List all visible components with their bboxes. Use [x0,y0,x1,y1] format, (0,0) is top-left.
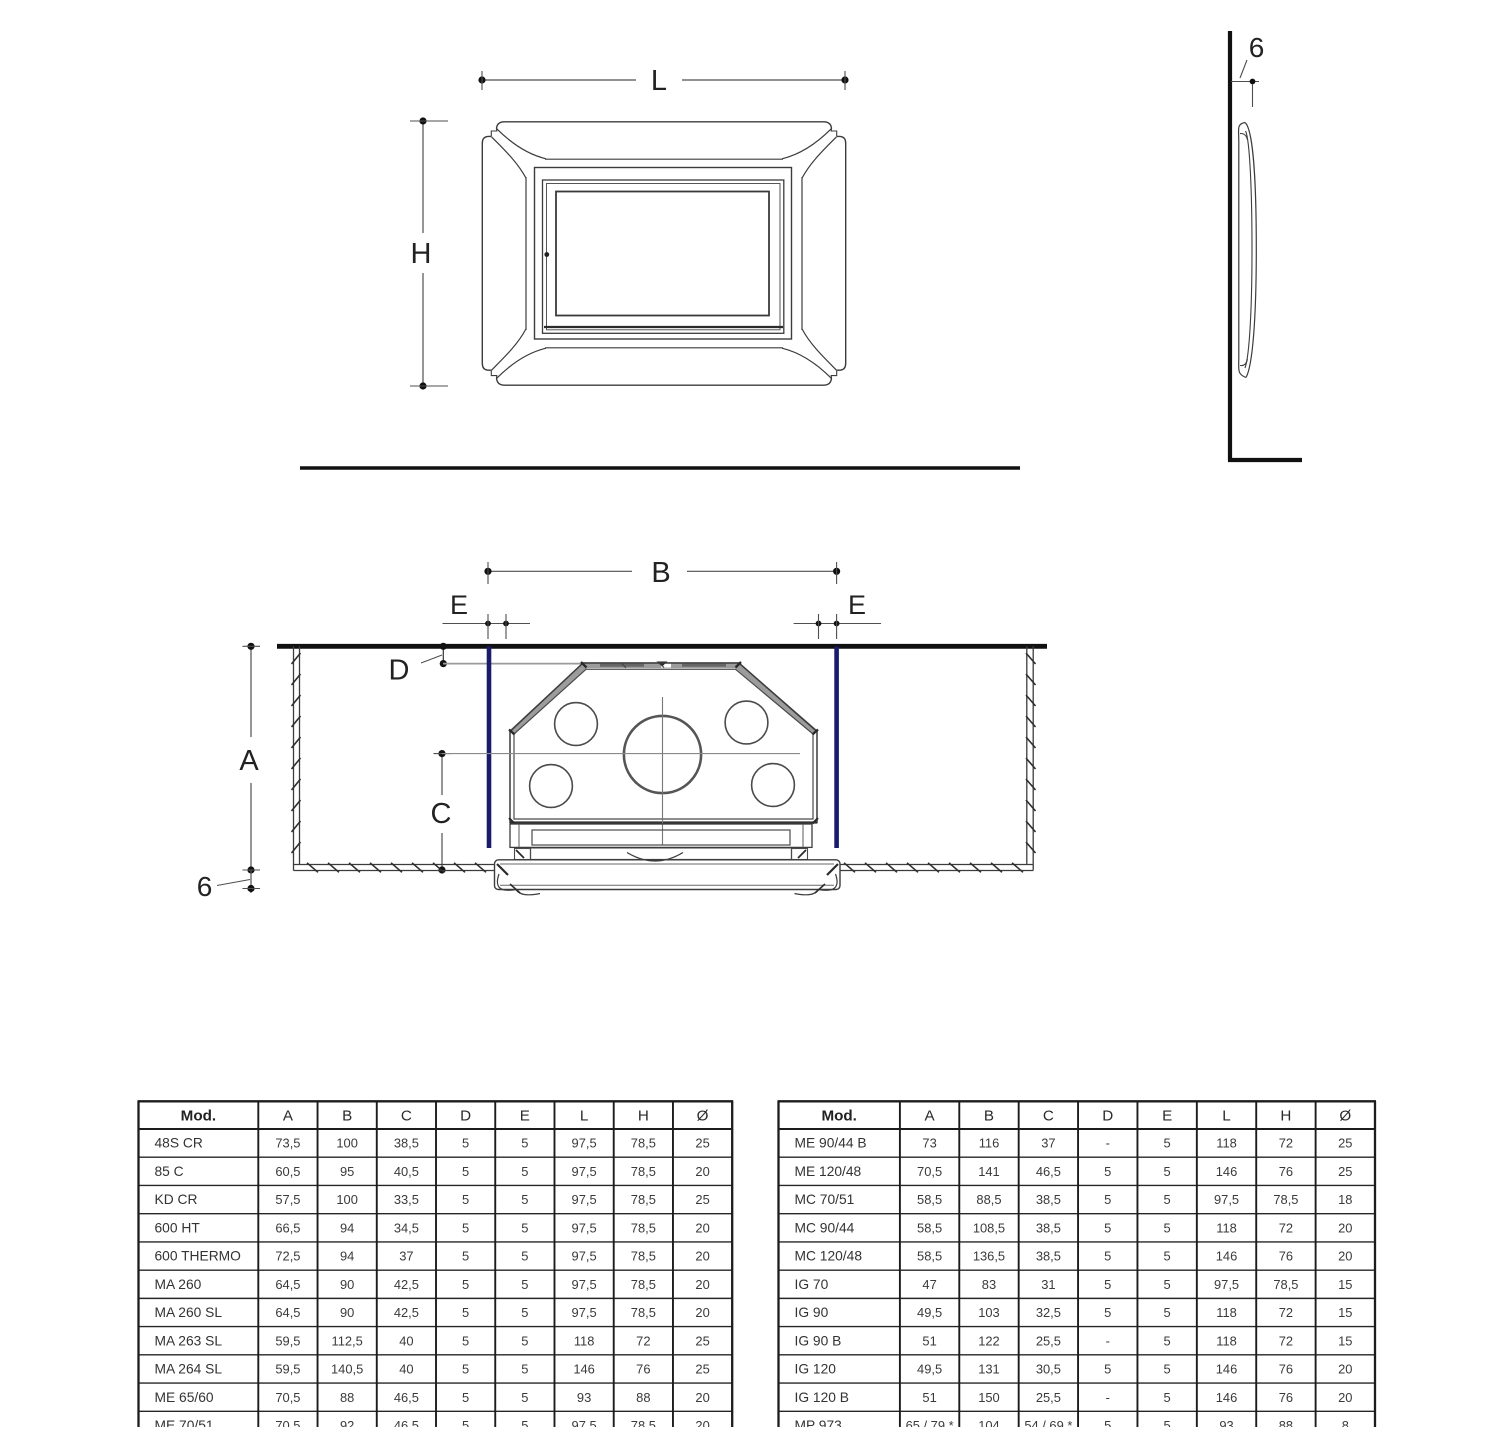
svg-text:66,5: 66,5 [275,1220,300,1235]
svg-text:MA 260: MA 260 [155,1277,202,1292]
svg-text:600 THERMO: 600 THERMO [155,1249,242,1264]
svg-text:20: 20 [695,1277,709,1292]
svg-text:20: 20 [695,1418,709,1427]
svg-text:25: 25 [695,1362,709,1377]
svg-text:5: 5 [1104,1164,1111,1179]
svg-text:136,5: 136,5 [973,1249,1005,1264]
svg-text:78,5: 78,5 [631,1249,656,1264]
svg-text:8: 8 [1342,1418,1349,1427]
svg-text:A: A [283,1107,294,1124]
svg-text:5: 5 [462,1192,469,1207]
svg-text:B: B [342,1107,352,1124]
svg-text:6: 6 [1249,32,1265,63]
svg-text:25: 25 [695,1333,709,1348]
svg-text:5: 5 [1164,1305,1171,1320]
svg-text:72,5: 72,5 [275,1249,300,1264]
svg-text:78,5: 78,5 [631,1164,656,1179]
svg-text:70,5: 70,5 [275,1390,300,1405]
svg-text:5: 5 [521,1192,528,1207]
svg-text:18: 18 [1338,1192,1352,1207]
svg-text:31: 31 [1041,1277,1055,1292]
svg-text:MC 70/51: MC 70/51 [795,1192,855,1207]
svg-text:72: 72 [1279,1333,1293,1348]
svg-text:78,5: 78,5 [631,1136,656,1151]
svg-text:51: 51 [922,1390,936,1405]
svg-text:60,5: 60,5 [275,1164,300,1179]
svg-text:64,5: 64,5 [275,1277,300,1292]
svg-text:MA 263 SL: MA 263 SL [155,1333,223,1348]
svg-text:88,5: 88,5 [976,1192,1001,1207]
svg-text:C: C [1043,1107,1054,1124]
svg-text:78,5: 78,5 [631,1277,656,1292]
svg-text:83: 83 [982,1277,996,1292]
svg-text:5: 5 [1104,1192,1111,1207]
svg-text:D: D [460,1107,471,1124]
svg-text:5: 5 [1164,1249,1171,1264]
svg-text:40,5: 40,5 [394,1164,419,1179]
svg-text:90: 90 [340,1277,354,1292]
svg-text:116: 116 [979,1136,1000,1151]
svg-text:122: 122 [978,1333,1000,1348]
svg-text:6: 6 [197,871,213,902]
svg-text:5: 5 [521,1418,528,1427]
svg-text:25: 25 [695,1192,709,1207]
svg-text:146: 146 [1216,1249,1238,1264]
svg-text:94: 94 [340,1220,354,1235]
svg-text:5: 5 [462,1362,469,1377]
svg-text:93: 93 [1219,1418,1233,1427]
svg-text:MA 260 SL: MA 260 SL [155,1305,223,1320]
svg-text:92: 92 [340,1418,354,1427]
svg-text:97,5: 97,5 [572,1249,597,1264]
svg-text:IG 70: IG 70 [795,1277,829,1292]
svg-text:104: 104 [978,1418,1000,1427]
svg-text:38,5: 38,5 [1036,1249,1061,1264]
svg-text:IG 90 B: IG 90 B [795,1333,842,1348]
svg-text:5: 5 [521,1305,528,1320]
svg-text:47: 47 [922,1277,936,1292]
svg-text:KD CR: KD CR [155,1192,198,1207]
svg-text:70,5: 70,5 [275,1418,300,1427]
svg-text:118: 118 [1216,1305,1237,1320]
svg-text:B: B [984,1107,994,1124]
svg-text:85 C: 85 C [155,1164,184,1179]
svg-text:MC 120/48: MC 120/48 [795,1249,863,1264]
svg-text:20: 20 [1338,1220,1352,1235]
svg-text:57,5: 57,5 [275,1192,300,1207]
svg-text:-: - [1106,1136,1110,1151]
svg-text:72: 72 [1279,1220,1293,1235]
svg-text:78,5: 78,5 [1273,1277,1298,1292]
svg-text:64,5: 64,5 [275,1305,300,1320]
svg-text:25: 25 [695,1136,709,1151]
svg-text:5: 5 [521,1220,528,1235]
svg-text:97,5: 97,5 [572,1305,597,1320]
svg-text:146: 146 [1216,1164,1238,1179]
svg-text:5: 5 [1104,1220,1111,1235]
svg-text:5: 5 [1164,1164,1171,1179]
svg-text:MC 90/44: MC 90/44 [795,1220,855,1235]
svg-text:20: 20 [1338,1362,1352,1377]
svg-text:108,5: 108,5 [973,1220,1005,1235]
svg-text:A: A [925,1107,936,1124]
svg-text:72: 72 [1279,1136,1293,1151]
svg-text:IG 120 B: IG 120 B [795,1390,849,1405]
svg-text:5: 5 [1104,1362,1111,1377]
svg-text:5: 5 [521,1390,528,1405]
svg-text:5: 5 [462,1220,469,1235]
svg-text:58,5: 58,5 [917,1220,942,1235]
svg-text:38,5: 38,5 [1036,1192,1061,1207]
svg-text:59,5: 59,5 [275,1333,300,1348]
svg-text:C: C [431,798,452,830]
svg-text:51: 51 [922,1333,936,1348]
svg-text:25: 25 [1338,1136,1352,1151]
svg-text:49,5: 49,5 [917,1305,942,1320]
svg-text:H: H [411,238,432,270]
svg-text:5: 5 [521,1164,528,1179]
svg-text:5: 5 [1164,1418,1171,1427]
svg-text:78,5: 78,5 [631,1418,656,1427]
svg-text:97,5: 97,5 [572,1220,597,1235]
svg-text:42,5: 42,5 [394,1305,419,1320]
svg-text:37: 37 [399,1249,413,1264]
svg-text:L: L [1222,1107,1230,1124]
svg-text:E: E [520,1107,530,1124]
svg-text:5: 5 [521,1333,528,1348]
svg-text:76: 76 [1279,1390,1293,1405]
svg-text:20: 20 [695,1305,709,1320]
svg-text:Mod.: Mod. [181,1107,216,1124]
svg-text:20: 20 [695,1220,709,1235]
svg-text:D: D [1102,1107,1113,1124]
svg-text:88: 88 [1279,1418,1293,1427]
svg-text:46,5: 46,5 [394,1390,419,1405]
svg-text:146: 146 [1216,1362,1238,1377]
svg-text:33,5: 33,5 [394,1192,419,1207]
svg-text:65 / 79 *: 65 / 79 * [906,1418,954,1427]
svg-text:34,5: 34,5 [394,1220,419,1235]
svg-text:100: 100 [336,1136,358,1151]
svg-text:94: 94 [340,1249,354,1264]
svg-text:IG 120: IG 120 [795,1362,837,1377]
svg-text:38,5: 38,5 [394,1136,419,1151]
svg-text:70,5: 70,5 [917,1164,942,1179]
svg-text:97,5: 97,5 [572,1164,597,1179]
svg-text:118: 118 [1216,1136,1237,1151]
svg-text:5: 5 [1164,1362,1171,1377]
svg-text:40: 40 [399,1362,413,1377]
svg-text:73: 73 [922,1136,936,1151]
svg-text:97,5: 97,5 [572,1136,597,1151]
svg-text:5: 5 [462,1418,469,1427]
svg-text:600 HT: 600 HT [155,1220,201,1235]
svg-text:141: 141 [978,1164,1000,1179]
svg-text:E: E [848,590,866,620]
svg-text:78,5: 78,5 [631,1192,656,1207]
svg-text:5: 5 [1164,1390,1171,1405]
svg-text:118: 118 [1216,1220,1237,1235]
svg-text:131: 131 [978,1362,1000,1377]
svg-text:ME 70/51: ME 70/51 [155,1418,214,1427]
svg-text:146: 146 [573,1362,595,1377]
svg-text:5: 5 [462,1136,469,1151]
svg-text:5: 5 [1104,1277,1111,1292]
svg-text:5: 5 [1164,1220,1171,1235]
svg-text:5: 5 [1164,1277,1171,1292]
svg-text:78,5: 78,5 [631,1220,656,1235]
svg-text:ME 120/48: ME 120/48 [795,1164,862,1179]
svg-text:15: 15 [1338,1277,1352,1292]
svg-text:58,5: 58,5 [917,1249,942,1264]
svg-text:150: 150 [978,1390,1000,1405]
svg-text:76: 76 [636,1362,650,1377]
svg-text:Ø: Ø [1339,1107,1351,1124]
svg-text:D: D [389,655,410,687]
svg-text:73,5: 73,5 [275,1136,300,1151]
svg-text:ME 65/60: ME 65/60 [155,1390,214,1405]
svg-text:E: E [450,590,468,620]
svg-text:C: C [401,1107,412,1124]
svg-text:25,5: 25,5 [1036,1390,1061,1405]
svg-text:49,5: 49,5 [917,1362,942,1377]
svg-text:5: 5 [462,1164,469,1179]
svg-text:5: 5 [521,1277,528,1292]
svg-text:72: 72 [1279,1305,1293,1320]
svg-text:20: 20 [1338,1249,1352,1264]
svg-text:15: 15 [1338,1333,1352,1348]
svg-text:30,5: 30,5 [1036,1362,1061,1377]
svg-text:5: 5 [521,1136,528,1151]
svg-text:140,5: 140,5 [331,1362,363,1377]
svg-text:58,5: 58,5 [917,1192,942,1207]
svg-text:H: H [638,1107,649,1124]
svg-text:32,5: 32,5 [1036,1305,1061,1320]
svg-text:-: - [1106,1333,1110,1348]
svg-text:48S CR: 48S CR [155,1136,203,1151]
svg-text:5: 5 [1164,1192,1171,1207]
svg-text:97,5: 97,5 [572,1418,597,1427]
svg-text:5: 5 [462,1305,469,1320]
svg-text:Mod.: Mod. [821,1107,856,1124]
svg-text:97,5: 97,5 [572,1277,597,1292]
svg-text:20: 20 [695,1164,709,1179]
svg-text:76: 76 [1279,1362,1293,1377]
svg-text:46,5: 46,5 [394,1418,419,1427]
svg-text:20: 20 [1338,1390,1352,1405]
svg-text:15: 15 [1338,1305,1352,1320]
svg-text:146: 146 [1216,1390,1238,1405]
svg-text:118: 118 [1216,1333,1237,1348]
svg-text:5: 5 [1164,1136,1171,1151]
svg-text:5: 5 [462,1249,469,1264]
svg-text:25,5: 25,5 [1036,1333,1061,1348]
svg-text:76: 76 [1279,1164,1293,1179]
svg-text:76: 76 [1279,1249,1293,1264]
svg-text:5: 5 [1104,1249,1111,1264]
svg-text:78,5: 78,5 [1273,1192,1298,1207]
svg-text:Ø: Ø [697,1107,709,1124]
svg-text:5: 5 [521,1362,528,1377]
svg-text:5: 5 [462,1390,469,1405]
svg-text:93: 93 [577,1390,591,1405]
svg-text:MA 264 SL: MA 264 SL [155,1362,223,1377]
svg-text:20: 20 [695,1249,709,1264]
svg-text:97,5: 97,5 [1214,1192,1239,1207]
svg-text:IG 90: IG 90 [795,1305,829,1320]
svg-text:5: 5 [1104,1418,1111,1427]
svg-text:5: 5 [462,1333,469,1348]
svg-text:40: 40 [399,1333,413,1348]
svg-text:ME 90/44 B: ME 90/44 B [795,1136,867,1151]
svg-text:42,5: 42,5 [394,1277,419,1292]
svg-text:5: 5 [1104,1305,1111,1320]
svg-text:L: L [580,1107,588,1124]
svg-text:38,5: 38,5 [1036,1220,1061,1235]
svg-text:B: B [651,557,670,589]
svg-text:72: 72 [636,1333,650,1348]
svg-text:118: 118 [574,1333,595,1348]
svg-text:90: 90 [340,1305,354,1320]
svg-text:46,5: 46,5 [1036,1164,1061,1179]
svg-text:5: 5 [1164,1333,1171,1348]
svg-text:100: 100 [336,1192,358,1207]
svg-text:97,5: 97,5 [572,1192,597,1207]
svg-text:95: 95 [340,1164,354,1179]
svg-text:-: - [1106,1390,1110,1405]
svg-text:78,5: 78,5 [631,1305,656,1320]
svg-text:103: 103 [978,1305,1000,1320]
svg-text:L: L [651,65,667,97]
svg-text:54 / 69 *: 54 / 69 * [1024,1418,1072,1427]
svg-text:MP 973: MP 973 [795,1418,843,1427]
svg-text:37: 37 [1041,1136,1055,1151]
svg-text:97,5: 97,5 [1214,1277,1239,1292]
svg-text:59,5: 59,5 [275,1362,300,1377]
svg-text:88: 88 [340,1390,354,1405]
svg-text:20: 20 [695,1390,709,1405]
svg-text:E: E [1162,1107,1172,1124]
svg-text:H: H [1280,1107,1291,1124]
svg-text:112,5: 112,5 [332,1333,363,1348]
svg-text:5: 5 [462,1277,469,1292]
svg-text:25: 25 [1338,1164,1352,1179]
svg-text:A: A [239,745,259,777]
svg-text:5: 5 [521,1249,528,1264]
svg-text:88: 88 [636,1390,650,1405]
